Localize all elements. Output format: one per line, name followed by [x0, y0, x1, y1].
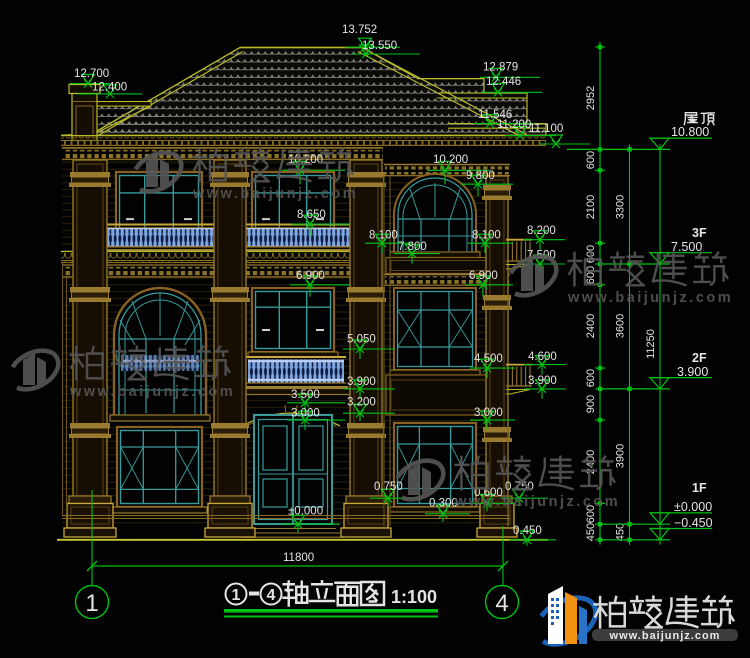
svg-text:±0.000: ±0.000: [674, 500, 712, 514]
svg-text:3.900: 3.900: [347, 376, 376, 388]
svg-text:2F: 2F: [692, 351, 707, 365]
svg-text:7.800: 7.800: [398, 241, 427, 253]
svg-text:1: 1: [85, 590, 98, 617]
svg-text:8.100: 8.100: [472, 230, 501, 242]
svg-text:3.000: 3.000: [474, 407, 503, 419]
svg-text:1:100: 1:100: [391, 587, 437, 607]
svg-text:2952: 2952: [585, 86, 597, 110]
svg-text:12.446: 12.446: [486, 76, 521, 88]
svg-text:11800: 11800: [283, 552, 314, 564]
svg-text:3.900: 3.900: [677, 365, 708, 379]
svg-text:www.baijunjz.com: www.baijunjz.com: [454, 494, 620, 510]
svg-text:0.300: 0.300: [429, 498, 458, 510]
svg-text:2400: 2400: [585, 314, 597, 338]
svg-text:7.500: 7.500: [671, 240, 702, 254]
svg-text:www.baijunjz.com: www.baijunjz.com: [192, 186, 358, 202]
svg-text:600: 600: [585, 369, 597, 387]
svg-text:9.800: 9.800: [466, 170, 495, 182]
svg-text:900: 900: [585, 395, 597, 413]
svg-text:www.baijunjz.com: www.baijunjz.com: [567, 290, 733, 306]
svg-text:12.700: 12.700: [74, 68, 109, 80]
svg-text:11.100: 11.100: [529, 123, 563, 135]
svg-text:3600: 3600: [615, 314, 627, 338]
svg-text:600: 600: [585, 151, 597, 169]
svg-text:13.752: 13.752: [342, 24, 377, 36]
svg-text:13.550: 13.550: [362, 40, 397, 52]
svg-text:0.750: 0.750: [374, 481, 403, 493]
svg-text:11250: 11250: [645, 329, 657, 359]
svg-text:3.900: 3.900: [528, 375, 557, 387]
svg-text:12.400: 12.400: [92, 82, 127, 94]
svg-text:−0.450: −0.450: [674, 516, 713, 530]
svg-text:10.800: 10.800: [671, 125, 709, 139]
svg-text:www.baijunjz.com: www.baijunjz.com: [609, 630, 721, 642]
svg-text:2100: 2100: [585, 195, 597, 219]
svg-text:3.200: 3.200: [347, 397, 376, 409]
svg-text:6.900: 6.900: [296, 270, 325, 282]
svg-text:4: 4: [495, 590, 508, 617]
svg-text:1F: 1F: [692, 481, 707, 495]
svg-text:4.600: 4.600: [528, 351, 557, 363]
svg-text:8.100: 8.100: [369, 230, 398, 242]
svg-text:8.650: 8.650: [297, 209, 326, 221]
svg-text:12.879: 12.879: [483, 62, 518, 74]
svg-text:5.050: 5.050: [347, 334, 376, 346]
svg-text:11.200: 11.200: [497, 119, 531, 131]
svg-text:4: 4: [267, 587, 276, 604]
svg-text:1: 1: [232, 587, 241, 604]
svg-text:450: 450: [585, 523, 597, 541]
svg-text:3300: 3300: [615, 195, 627, 219]
svg-text:www.baijunjz.com: www.baijunjz.com: [69, 384, 235, 400]
svg-text:3F: 3F: [692, 226, 707, 240]
svg-text:3.500: 3.500: [291, 389, 320, 401]
svg-text:0.450: 0.450: [513, 525, 542, 537]
svg-text:600: 600: [585, 266, 597, 284]
svg-text:450: 450: [615, 523, 627, 541]
svg-text:3.000: 3.000: [291, 408, 320, 420]
svg-text:3900: 3900: [615, 444, 627, 468]
svg-text:±0.000: ±0.000: [288, 506, 323, 518]
svg-text:4.500: 4.500: [474, 353, 503, 365]
svg-text:10.200: 10.200: [433, 154, 468, 166]
svg-text:6.900: 6.900: [469, 270, 498, 282]
svg-text:8.200: 8.200: [527, 225, 556, 237]
